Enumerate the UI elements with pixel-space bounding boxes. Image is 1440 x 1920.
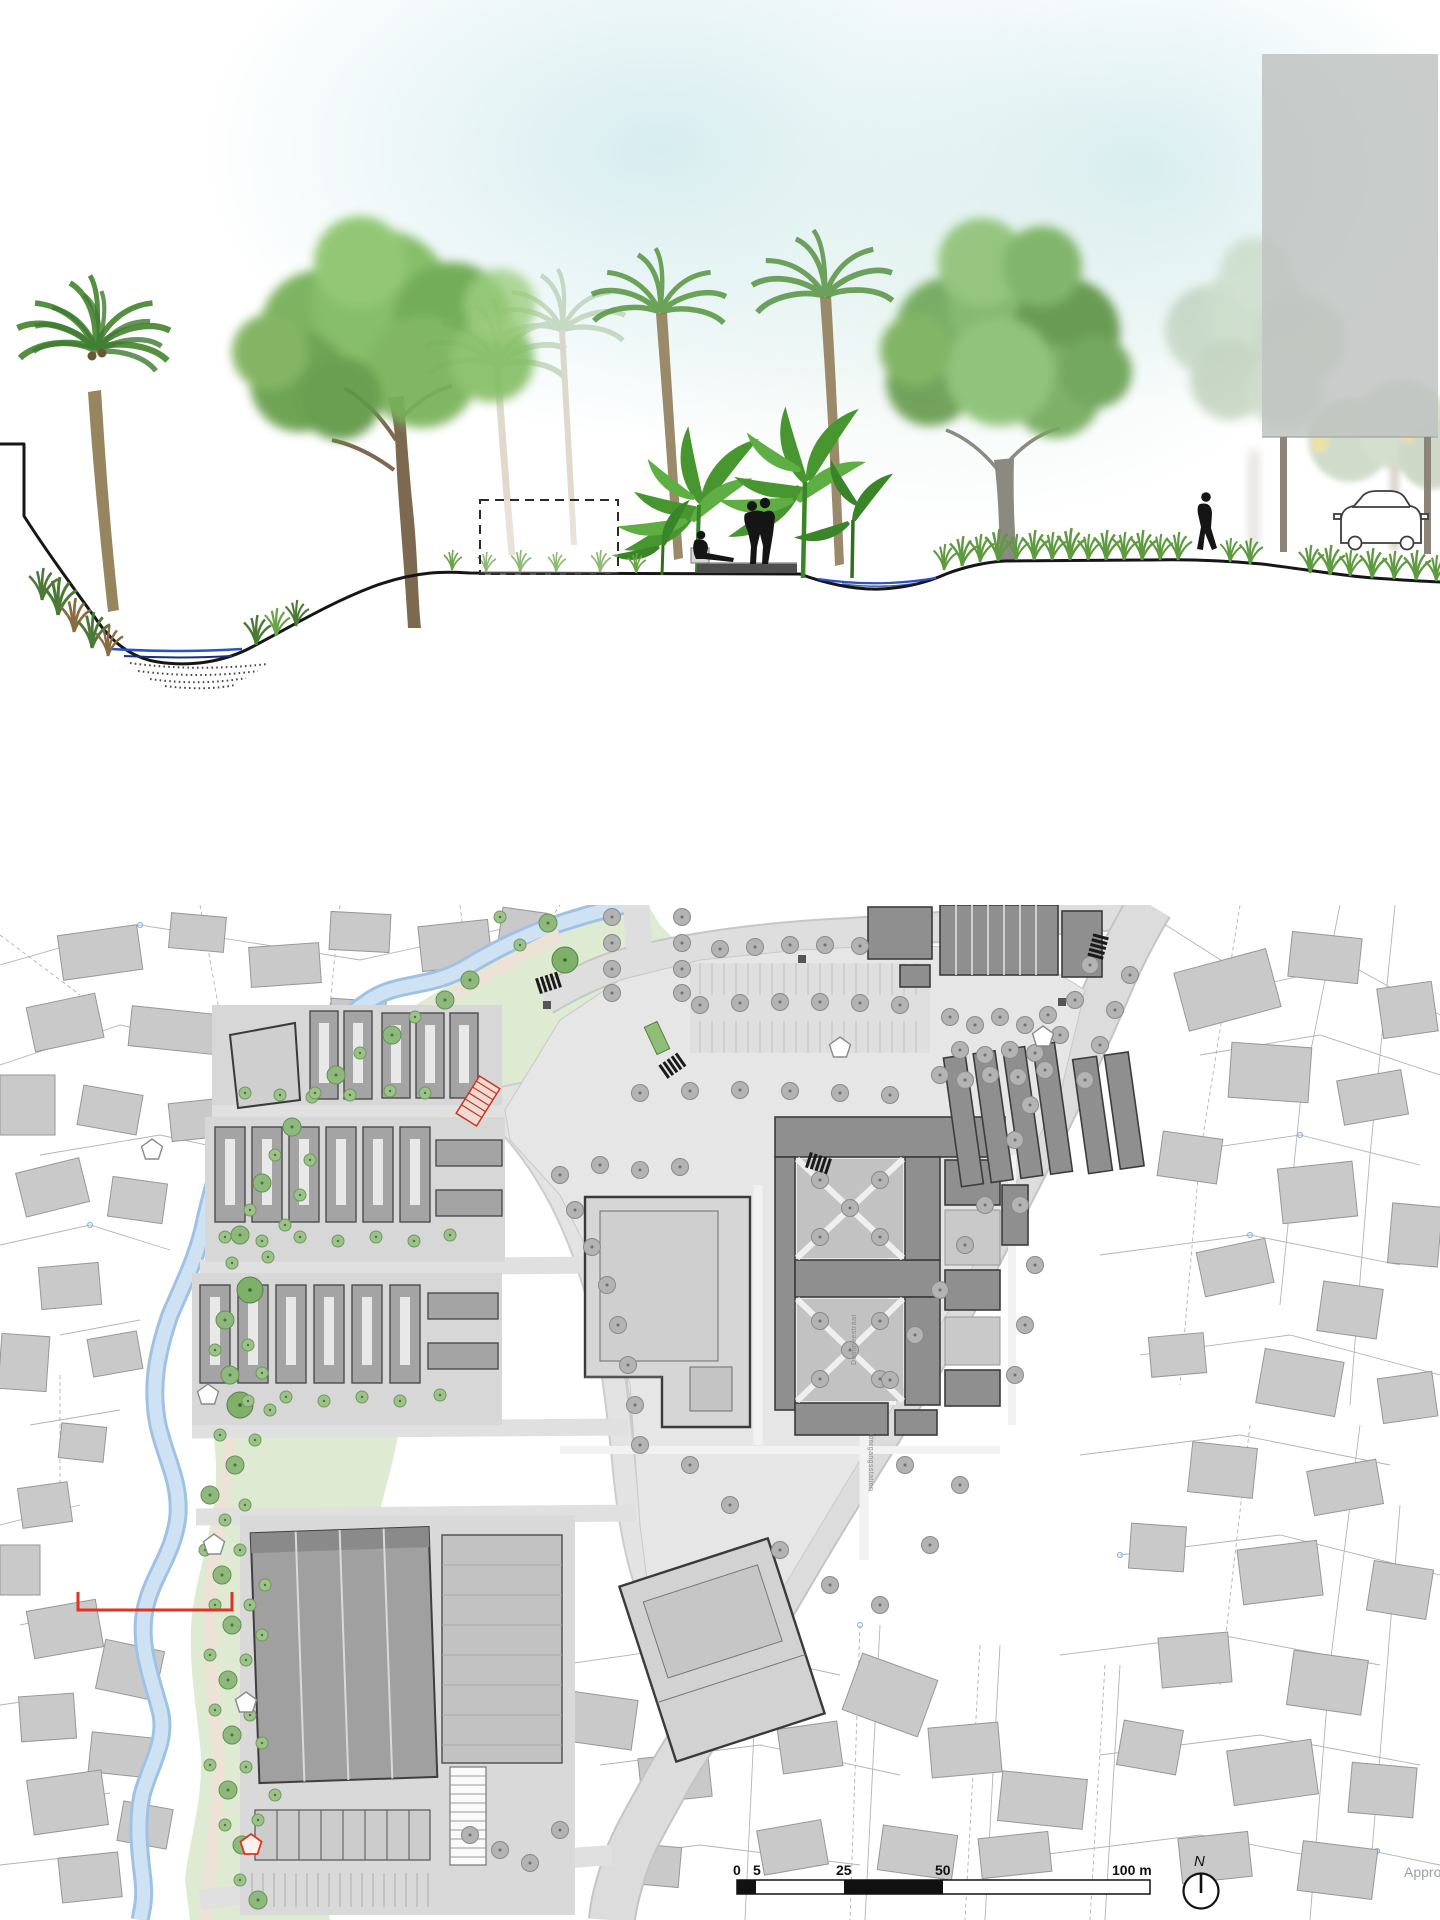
scale-tick-25: 25 <box>836 1862 852 1878</box>
section-drawing <box>0 0 1440 905</box>
scale-tick-0: 0 <box>733 1862 741 1878</box>
column <box>1280 437 1287 552</box>
industrial-area <box>240 1515 575 1915</box>
column <box>1424 437 1431 554</box>
deck-platform <box>697 563 797 573</box>
section-svg <box>0 0 1440 905</box>
masterplan-sheet: Domineestraat Doorgangsstation 0 5 25 50… <box>0 0 1440 1920</box>
scale-tick-50: 50 <box>935 1862 951 1878</box>
walking-person <box>1197 492 1217 550</box>
scale-tick-100: 100 m <box>1112 1862 1152 1878</box>
car-outline <box>1334 491 1428 550</box>
seated-person <box>691 531 734 563</box>
watermark-text: Appro <box>1404 1864 1440 1880</box>
street-label-2: Doorgangsstation <box>867 1430 874 1491</box>
north-label: N <box>1194 1853 1205 1870</box>
courtyard-1 <box>797 1159 903 1258</box>
scale-tick-5: 5 <box>753 1862 761 1878</box>
grass-under-car <box>1299 545 1440 581</box>
rowhouses-row1 <box>310 1011 478 1099</box>
rowhouse-district <box>192 1005 505 1425</box>
coconut-palm-left <box>18 276 171 613</box>
site-plan-svg: Domineestraat Doorgangsstation 0 5 25 50… <box>0 905 1440 1920</box>
site-plan: Domineestraat Doorgangsstation 0 5 25 50… <box>0 905 1440 1920</box>
street-label-1: Domineestraat <box>851 1314 858 1365</box>
reeds-left <box>29 568 309 656</box>
dashed-callout-box <box>480 500 618 574</box>
